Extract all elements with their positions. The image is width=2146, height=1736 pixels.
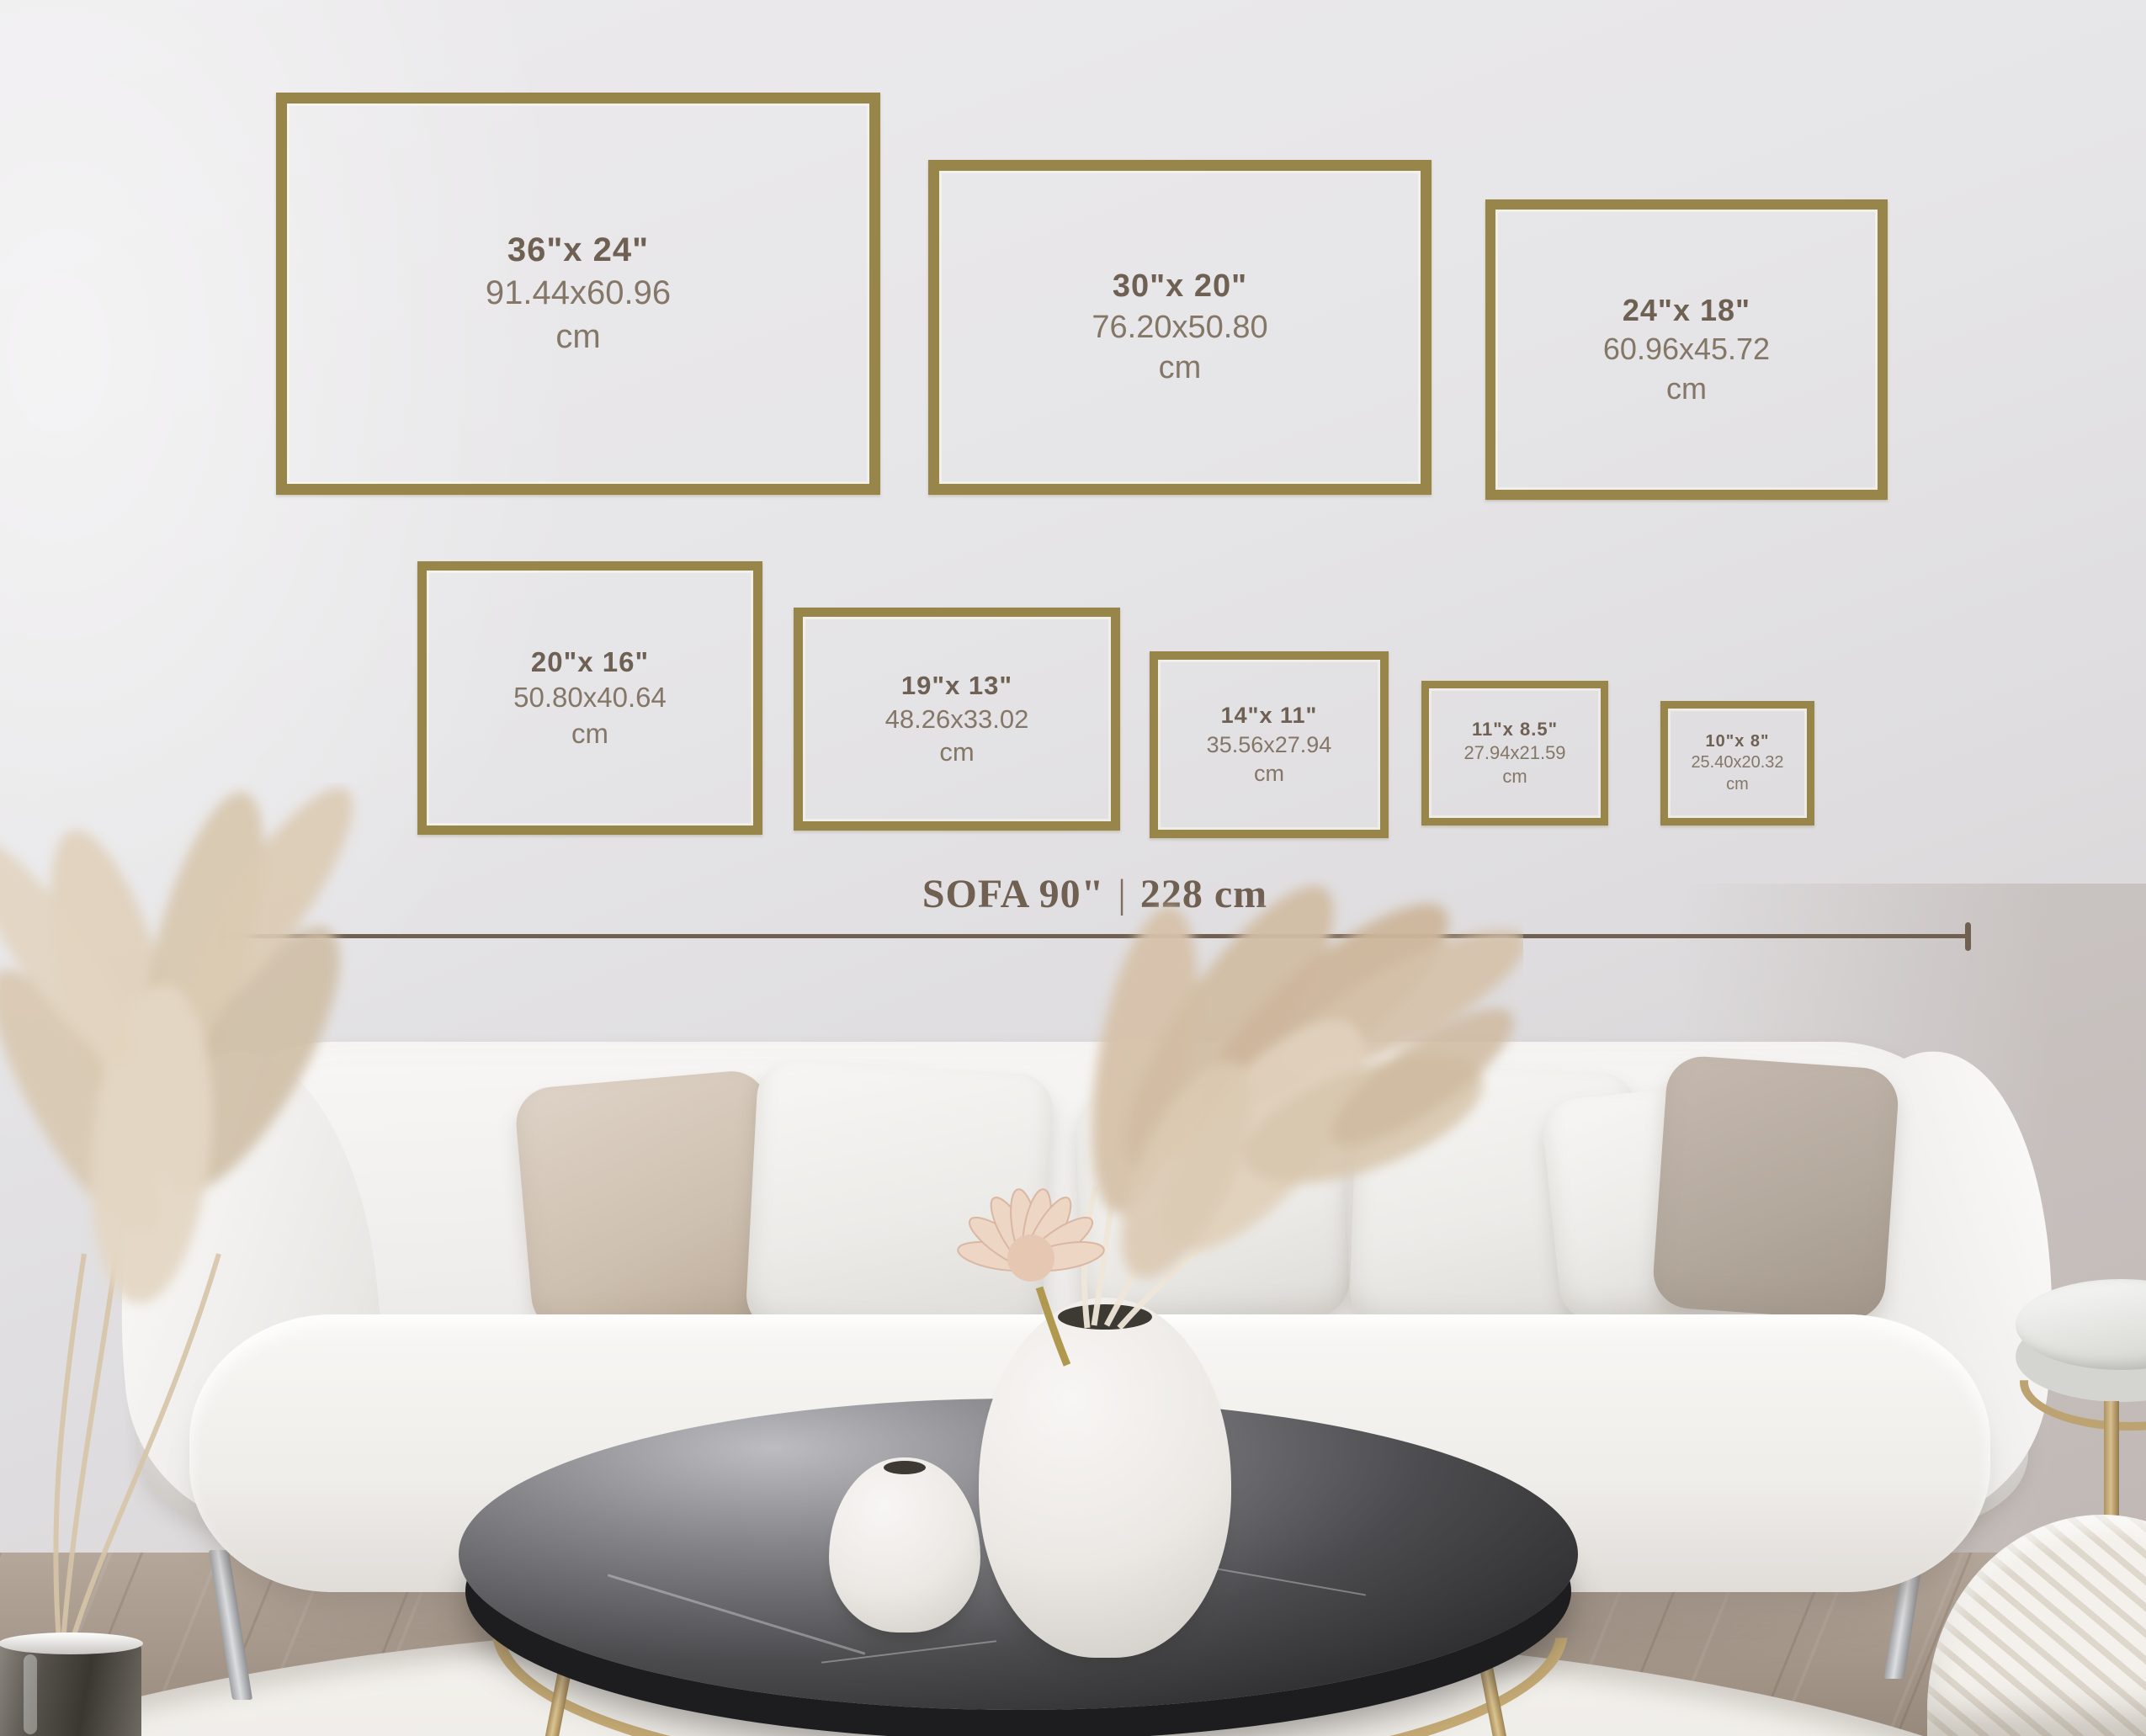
frame-30x20-label: 30"x 20" 76.20x50.80 cm xyxy=(1092,266,1267,389)
frame-size-inches: 14"x 11" xyxy=(1207,701,1332,730)
frame-size-inches: 30"x 20" xyxy=(1092,266,1267,307)
frame-size-unit: cm xyxy=(1092,348,1267,389)
pampas-center-plumes xyxy=(1072,867,1523,1296)
frame-size-cm: 91.44x60.96 xyxy=(486,272,671,315)
frame-size-cm: 27.94x21.59 xyxy=(1463,741,1565,765)
frame-size-cm: 50.80x40.64 xyxy=(513,680,667,715)
pillow-beige-left xyxy=(513,1068,786,1335)
frame-size-inches: 19"x 13" xyxy=(885,669,1029,703)
frame-size-inches: 36"x 24" xyxy=(486,229,671,272)
frame-14x11: 14"x 11" 35.56x27.94 cm xyxy=(1150,651,1389,838)
frame-size-unit: cm xyxy=(1603,369,1770,408)
frame-11x8_5-label: 11"x 8.5" 27.94x21.59 cm xyxy=(1463,718,1565,788)
frame-19x13-label: 19"x 13" 48.26x33.02 cm xyxy=(885,669,1029,769)
pillow-taupe-right xyxy=(1651,1054,1900,1323)
frame-size-inches: 11"x 8.5" xyxy=(1463,718,1565,741)
frame-size-cm: 76.20x50.80 xyxy=(1092,307,1267,348)
measurement-end-tick-right xyxy=(1965,922,1971,951)
frame-size-cm: 25.40x20.32 xyxy=(1691,752,1783,774)
frame-14x11-label: 14"x 11" 35.56x27.94 cm xyxy=(1207,701,1332,788)
marble-vein xyxy=(608,1574,866,1654)
frame-size-unit: cm xyxy=(513,716,667,751)
frame-24x18-label: 24"x 18" 60.96x45.72 cm xyxy=(1603,291,1770,407)
frame-size-inches: 10"x 8" xyxy=(1691,731,1783,753)
frame-24x18: 24"x 18" 60.96x45.72 cm xyxy=(1485,199,1888,500)
frame-size-cm: 35.56x27.94 xyxy=(1207,730,1332,760)
frame-size-unit: cm xyxy=(885,735,1029,769)
frame-size-cm: 60.96x45.72 xyxy=(1603,330,1770,369)
frame-size-unit: cm xyxy=(1207,759,1332,788)
pampas-arrangement-center xyxy=(867,867,1523,1422)
glass-vase-highlight xyxy=(24,1654,37,1734)
glass-vase-rim xyxy=(0,1632,143,1654)
frame-size-unit: cm xyxy=(1463,765,1565,788)
pampas-left-plumes xyxy=(0,783,378,1309)
frame-size-guide-mockup: 36"x 24" 91.44x60.96 cm 30"x 20" 76.20x5… xyxy=(0,0,2146,1736)
frame-11x8_5: 11"x 8.5" 27.94x21.59 cm xyxy=(1421,681,1608,826)
frame-36x24: 36"x 24" 91.44x60.96 cm xyxy=(276,93,880,495)
frame-size-inches: 20"x 16" xyxy=(513,645,667,680)
frame-19x13: 19"x 13" 48.26x33.02 cm xyxy=(794,608,1120,831)
vase-small-mouth xyxy=(884,1461,926,1474)
frame-size-inches: 24"x 18" xyxy=(1603,291,1770,330)
frame-20x16: 20"x 16" 50.80x40.64 cm xyxy=(417,561,762,835)
frame-36x24-label: 36"x 24" 91.44x60.96 cm xyxy=(486,229,671,358)
marble-vein xyxy=(821,1640,997,1664)
frame-20x16-label: 20"x 16" 50.80x40.64 cm xyxy=(513,645,667,751)
frame-size-unit: cm xyxy=(1691,774,1783,796)
pampas-plant-left xyxy=(0,783,421,1736)
glass-vase-left xyxy=(0,1639,141,1736)
frame-30x20: 30"x 20" 76.20x50.80 cm xyxy=(928,160,1432,495)
frame-size-cm: 48.26x33.02 xyxy=(885,703,1029,736)
frame-10x8-label: 10"x 8" 25.40x20.32 cm xyxy=(1691,731,1783,796)
frame-10x8: 10"x 8" 25.40x20.32 cm xyxy=(1660,701,1814,826)
frame-size-unit: cm xyxy=(486,316,671,358)
